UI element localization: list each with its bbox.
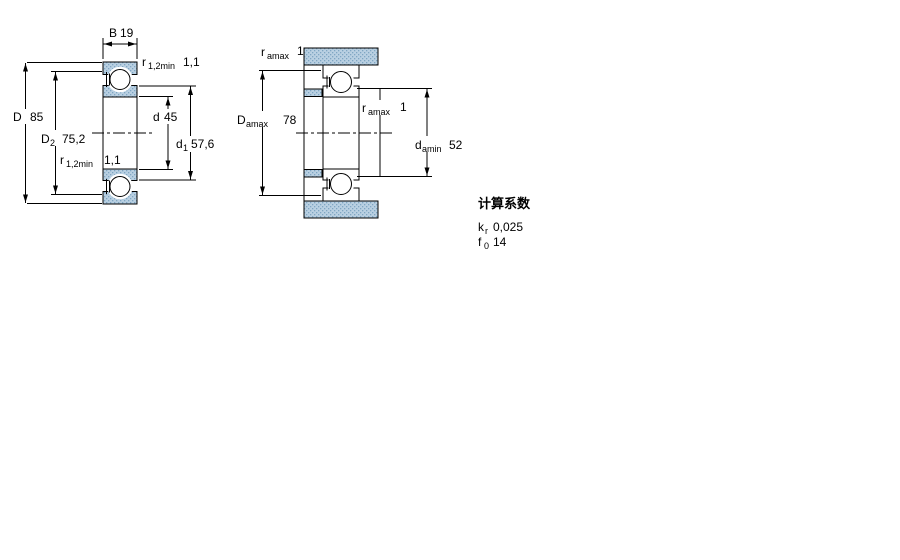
value-Damax: 78 [283, 113, 297, 127]
value-d1: 57,6 [191, 137, 215, 151]
calculation-factors: 计算系数 k r 0,025 f 0 14 [478, 196, 531, 251]
value-r: 1 [297, 44, 304, 58]
label-Damax-sub: amax [246, 119, 269, 129]
label-r-bottom: r 1,2min 1,1 [60, 153, 121, 169]
right-mounting-figure: r amax 1 D amax 78 d amin 52 [235, 44, 464, 218]
value-damin: 52 [449, 138, 463, 152]
label-damin: d [415, 138, 422, 152]
housing-block-bottom [304, 201, 378, 218]
bearing-drawing-page: B 19 r 1,2min 1,1 D 85 D 2 7 [0, 0, 900, 560]
label-kr-sub: r [485, 226, 488, 236]
value-d: 45 [164, 110, 178, 124]
value-D2: 75,2 [62, 132, 86, 146]
value-f0: 14 [493, 235, 507, 249]
dimension-B: B 19 [103, 26, 137, 59]
label-f0: f [478, 235, 482, 249]
label-d: d [153, 110, 160, 124]
factor-row-kr: k r 0,025 [478, 220, 523, 236]
ball-top [331, 72, 352, 93]
extension-line [103, 38, 137, 59]
ball-bottom [110, 177, 130, 197]
ball-bottom [331, 174, 352, 195]
label-r: r [261, 45, 265, 59]
label-D2: D [41, 132, 50, 146]
label-kr: k [478, 220, 485, 234]
label-r-sub: amax [368, 107, 391, 117]
label-d1-sub: 1 [183, 143, 188, 153]
value-kr: 0,025 [493, 220, 523, 234]
label-r-amax-top: r amax 1 [261, 44, 304, 61]
factors-title: 计算系数 [478, 196, 531, 211]
housing-block-top [304, 48, 378, 65]
label-d1: d [176, 137, 183, 151]
label-r-sub: 1,2min [66, 159, 93, 169]
ball-top [110, 70, 130, 90]
label-Damax: D [237, 113, 246, 127]
label-D2-sub: 2 [50, 138, 55, 148]
shaft-shoulder-top [304, 89, 322, 97]
label-r: r [362, 101, 366, 115]
label-r: r [142, 55, 146, 69]
label-B: B [109, 26, 117, 40]
value-r: 1 [400, 100, 407, 114]
label-r-sub: 1,2min [148, 61, 175, 71]
label-f0-sub: 0 [484, 241, 489, 251]
label-D: D [13, 110, 22, 124]
factor-row-f0: f 0 14 [478, 235, 507, 251]
label-r: r [60, 153, 64, 167]
label-damin-sub: amin [422, 144, 442, 154]
left-cross-section-figure: B 19 r 1,2min 1,1 D 85 D 2 7 [11, 26, 216, 204]
label-r-amax-mid: r amax 1 [360, 100, 407, 117]
value-B: 19 [120, 26, 134, 40]
value-r: 1,1 [104, 153, 121, 167]
technical-drawing: B 19 r 1,2min 1,1 D 85 D 2 7 [0, 0, 900, 560]
value-D: 85 [30, 110, 44, 124]
label-r-top: r 1,2min 1,1 [142, 55, 200, 71]
label-r-sub: amax [267, 51, 290, 61]
shaft-shoulder-bottom [304, 170, 322, 178]
value-r: 1,1 [183, 55, 200, 69]
